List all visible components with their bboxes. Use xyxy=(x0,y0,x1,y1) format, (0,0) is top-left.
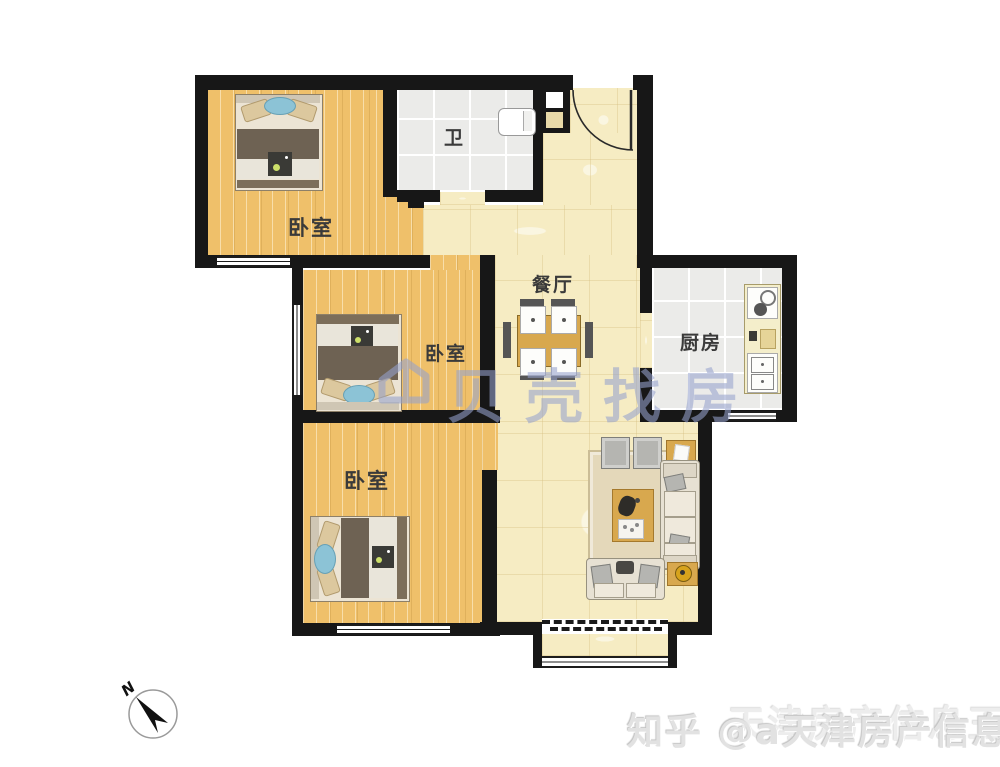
wall-stub-bedroom-a-door xyxy=(408,196,424,208)
wall-kitchen-top xyxy=(637,255,797,268)
floor-entry-2 xyxy=(543,133,637,207)
sofa-pillow xyxy=(664,473,687,493)
bed-laptop xyxy=(351,326,373,348)
bed-bottom xyxy=(310,516,410,602)
window-bedroom-a xyxy=(217,256,290,267)
watermark-corner: 知乎 @a天津房产信息王 xyxy=(627,703,1000,755)
bed-laptop xyxy=(268,152,292,176)
bed-footer xyxy=(317,315,399,324)
balcony-opening-dashed xyxy=(542,619,668,634)
wall-living-right xyxy=(698,422,712,635)
bed-top-left xyxy=(235,94,323,191)
bed-footer xyxy=(237,180,319,188)
shaft-white xyxy=(546,92,563,108)
wall-bathroom-right xyxy=(533,87,543,192)
compass-circle xyxy=(129,690,177,738)
sofa xyxy=(660,460,700,570)
compass-n-label: N xyxy=(118,678,139,700)
floor-bedroom-middle-door-gap xyxy=(430,255,480,270)
label-bedroom-bottom: 卧室 xyxy=(344,465,390,495)
stool xyxy=(633,437,662,469)
stove xyxy=(747,287,778,319)
bed-blanket xyxy=(341,518,371,598)
label-bathroom: 卫 xyxy=(444,123,465,150)
loveseat xyxy=(586,558,665,600)
label-bedroom-top-left: 卧室 xyxy=(288,212,334,242)
coffee-table xyxy=(612,489,654,542)
window-balcony xyxy=(542,656,668,668)
floor-corridor xyxy=(423,205,637,257)
kitchen-rack xyxy=(760,329,776,349)
bed-tray xyxy=(314,544,336,574)
beike-logo-icon xyxy=(372,356,434,408)
dining-seat xyxy=(520,306,546,334)
dining-seat xyxy=(551,306,577,334)
wall-top xyxy=(195,75,573,90)
wall-bathroom-left xyxy=(383,90,397,197)
north-arrow xyxy=(136,697,168,733)
wall-kitchen-left-upper xyxy=(640,268,652,313)
wall-hall-right xyxy=(637,75,653,257)
toilet xyxy=(498,108,536,136)
bed-footer xyxy=(397,517,407,599)
wall-balcony-right xyxy=(668,630,677,668)
wall-outer-left xyxy=(195,75,208,268)
shaft-duct xyxy=(546,112,563,128)
side-table-bottom xyxy=(667,562,698,586)
wall-kitchen-right xyxy=(782,255,797,422)
kitchen-item xyxy=(749,331,757,341)
wall-balcony-left xyxy=(533,630,542,668)
bed-tray xyxy=(264,97,296,115)
bed-laptop xyxy=(372,546,394,568)
watermark-brand: 贝壳找房 xyxy=(447,350,759,434)
floor-bathroom-door-gap xyxy=(440,192,485,205)
floor-plan: N 卧室 卫 餐厅 厨房 卧室 卧室 贝壳找房 天津房产信息王 知乎 @a天津房… xyxy=(0,0,1000,767)
window-bedroom-b xyxy=(292,305,302,395)
window-bedroom-c xyxy=(337,624,450,635)
table-decor xyxy=(616,494,638,518)
loveseat-item xyxy=(616,561,634,574)
table-tray xyxy=(618,519,644,539)
label-dining: 餐厅 xyxy=(532,270,574,297)
stool xyxy=(601,437,630,469)
wall-bedroom-c-right xyxy=(482,470,497,623)
